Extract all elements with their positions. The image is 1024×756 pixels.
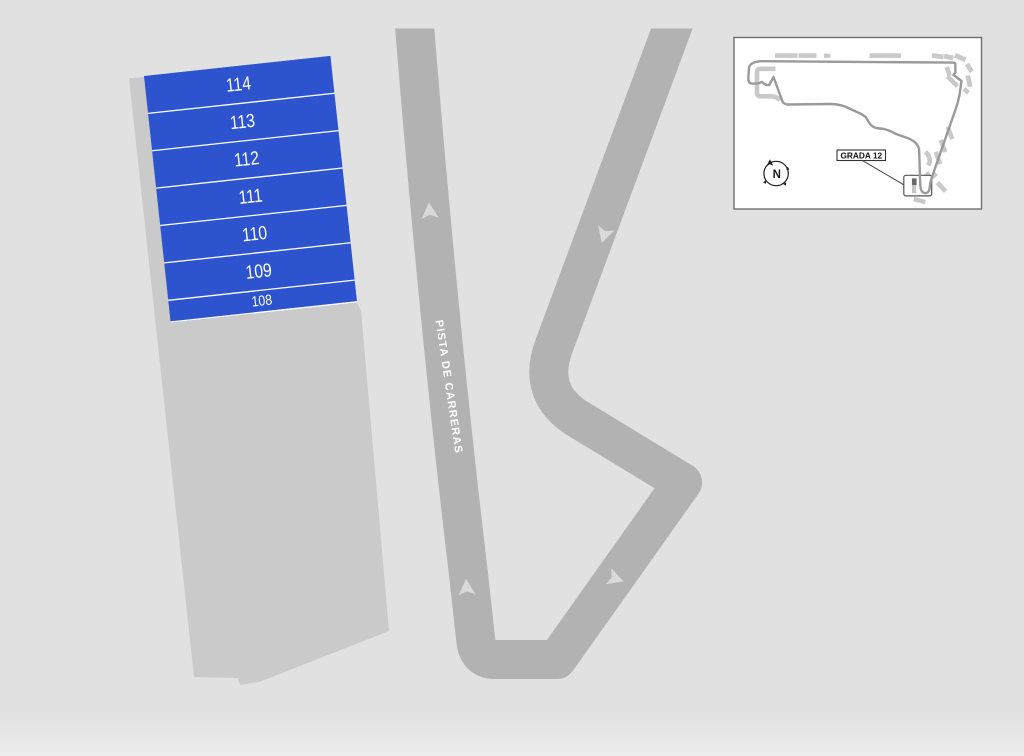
svg-text:110: 110 [241, 221, 269, 245]
svg-text:114: 114 [225, 72, 253, 96]
svg-text:108: 108 [251, 292, 273, 310]
svg-text:GRADA 12: GRADA 12 [840, 150, 882, 160]
svg-text:N: N [773, 169, 781, 181]
svg-text:109: 109 [244, 259, 272, 283]
svg-text:112: 112 [233, 147, 260, 171]
svg-text:111: 111 [237, 184, 263, 208]
svg-text:113: 113 [229, 109, 256, 133]
